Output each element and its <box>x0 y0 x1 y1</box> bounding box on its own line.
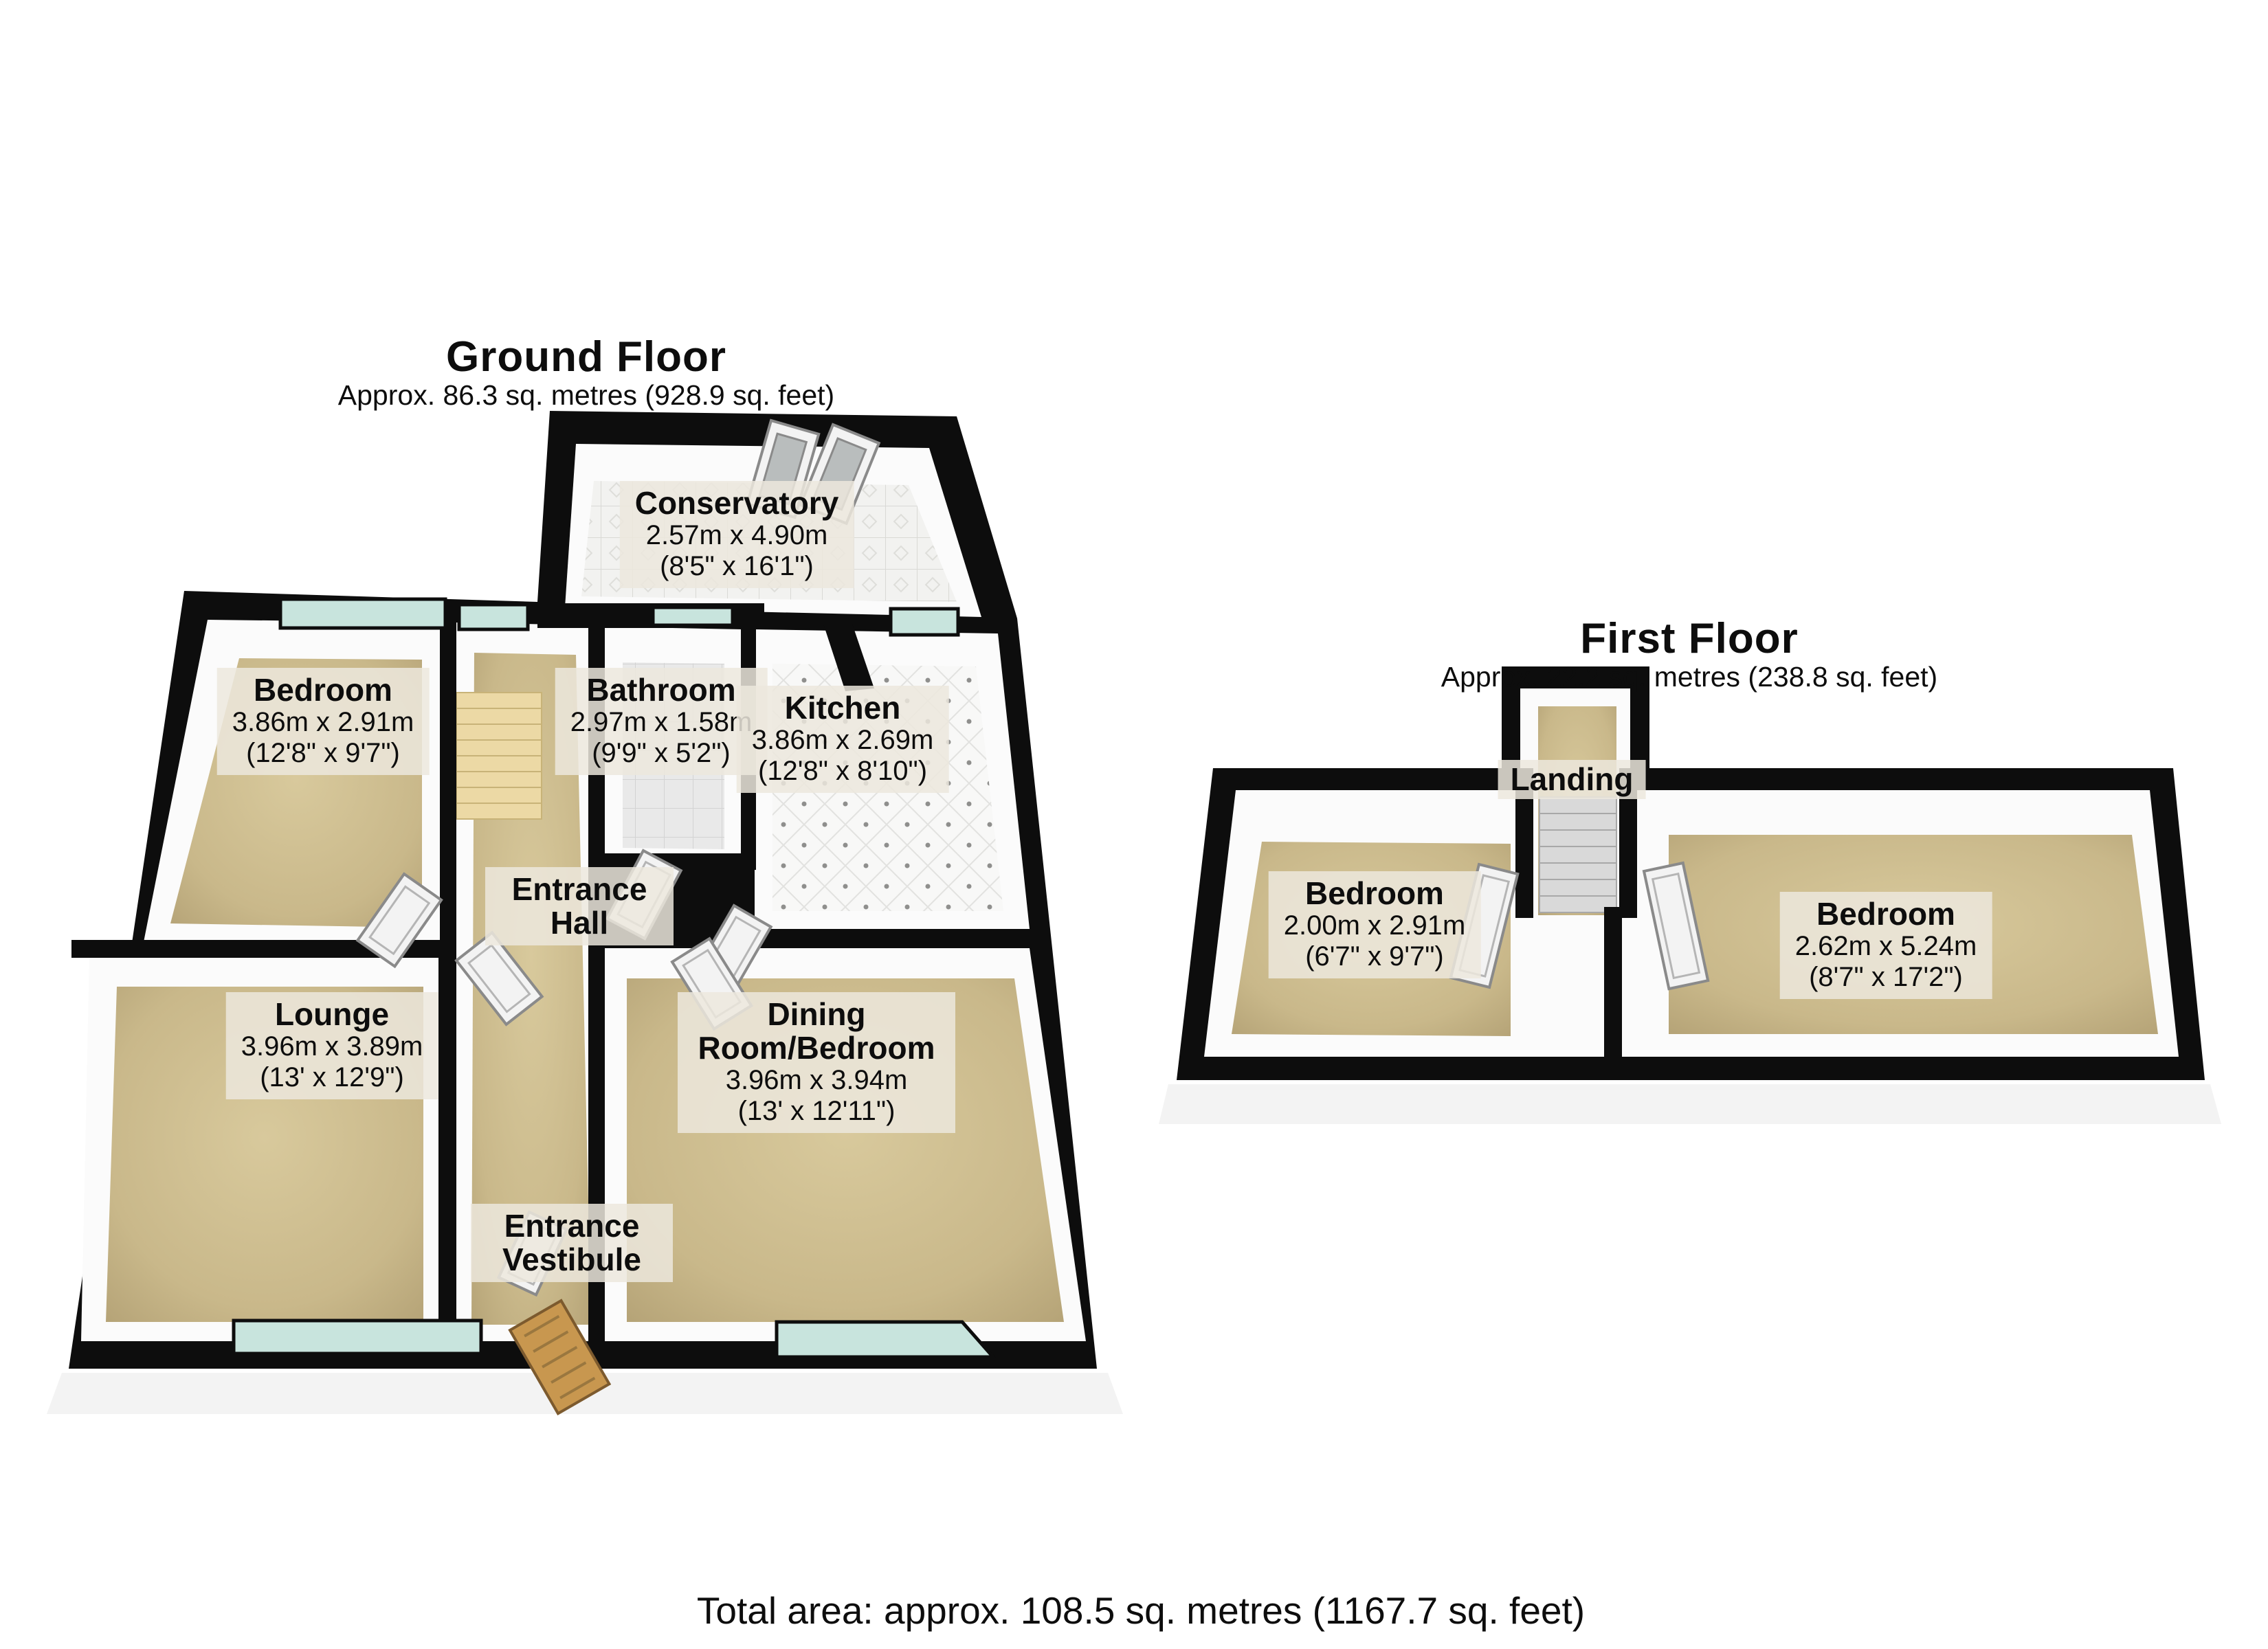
room-dims-metres: 2.62m x 5.24m <box>1795 931 1977 963</box>
room-label-bedroom-ff-left: Bedroom 2.00m x 2.91m (6'7" x 9'7") <box>1269 871 1481 978</box>
room-dims-feet: (13' x 12'11") <box>693 1096 940 1128</box>
room-dims-feet: (12'8" x 9'7") <box>232 738 414 770</box>
first-floor-shadow <box>1159 1084 2221 1124</box>
room-name: Landing <box>1511 763 1634 796</box>
room-label-conservatory: Conservatory 2.57m x 4.90m (8'5" x 16'1"… <box>620 481 854 588</box>
room-label-bathroom: Bathroom 2.97m x 1.58m (9'9" x 5'2") <box>555 668 768 775</box>
floorplan-page: Ground Floor Approx. 86.3 sq. metres (92… <box>0 0 2268 1649</box>
room-name: Entrance Vestibule <box>486 1209 658 1277</box>
room-dims-feet: (8'7" x 17'2") <box>1795 962 1977 994</box>
room-name: Conservatory <box>635 486 839 520</box>
conservatory-side-window <box>653 607 733 625</box>
room-name: Entrance Hall <box>500 873 658 940</box>
room-label-entrance-vestibule: Entrance Vestibule <box>471 1204 673 1282</box>
room-label-kitchen: Kitchen 3.86m x 2.69m (12'8" x 8'10") <box>737 686 949 793</box>
kitchen-window <box>891 609 958 635</box>
ground-floor-subtitle: Approx. 86.3 sq. metres (928.9 sq. feet) <box>338 379 834 412</box>
room-label-dining-room: Dining Room/Bedroom 3.96m x 3.94m (13' x… <box>678 992 955 1133</box>
room-dims-metres: 2.00m x 2.91m <box>1284 910 1466 942</box>
room-name: Kitchen <box>752 691 934 725</box>
dining-bay-window <box>777 1322 993 1357</box>
room-name: Lounge <box>241 998 423 1031</box>
room-label-bedroom-gf: Bedroom 3.86m x 2.91m (12'8" x 9'7") <box>217 668 430 775</box>
room-name: Bedroom <box>232 673 414 707</box>
lounge-bay-window <box>234 1321 481 1354</box>
first-floor-subtitle: Approx. 22.2 sq. metres (238.8 sq. feet) <box>1441 661 1937 693</box>
room-dims-feet: (13' x 12'9") <box>241 1062 423 1094</box>
room-dims-feet: (9'9" x 5'2") <box>570 738 753 770</box>
room-name: Bedroom <box>1284 877 1466 910</box>
total-area-text: Total area: approx. 108.5 sq. metres (11… <box>697 1589 1585 1633</box>
room-name: Dining Room/Bedroom <box>693 998 940 1065</box>
room-dims-feet: (8'5" x 16'1") <box>635 551 839 583</box>
room-name: Bedroom <box>1795 897 1977 931</box>
room-name: Bathroom <box>570 673 753 707</box>
room-dims-metres: 3.86m x 2.91m <box>232 707 414 739</box>
staircase-ff <box>1539 797 1616 912</box>
ground-floor-title: Ground Floor <box>446 333 726 381</box>
room-dims-metres: 2.97m x 1.58m <box>570 707 753 739</box>
hall-window <box>459 605 528 629</box>
floorplan-drawing <box>0 0 2268 1649</box>
room-dims-metres: 2.57m x 4.90m <box>635 520 839 552</box>
room-dims-metres: 3.96m x 3.89m <box>241 1031 423 1063</box>
room-dims-feet: (12'8" x 8'10") <box>752 756 934 787</box>
room-dims-feet: (6'7" x 9'7") <box>1284 941 1466 973</box>
room-dims-metres: 3.86m x 2.69m <box>752 725 934 756</box>
room-label-landing: Landing <box>1498 760 1646 799</box>
first-floor-title: First Floor <box>1580 614 1799 663</box>
room-label-entrance-hall: Entrance Hall <box>485 867 674 945</box>
staircase-gf <box>456 693 542 819</box>
room-dims-metres: 3.96m x 3.94m <box>693 1065 940 1097</box>
room-label-bedroom-ff-right: Bedroom 2.62m x 5.24m (8'7" x 17'2") <box>1780 892 1992 999</box>
room-label-lounge: Lounge 3.96m x 3.89m (13' x 12'9") <box>226 992 438 1099</box>
bedroom-bay-window <box>280 599 445 628</box>
